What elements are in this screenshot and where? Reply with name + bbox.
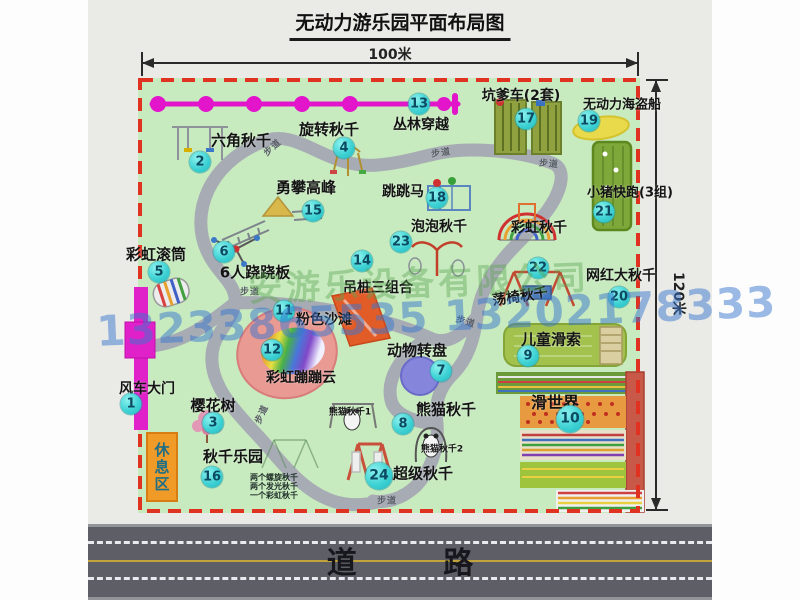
poi-marker-16: 16 <box>202 467 223 488</box>
dimension-width-label: 100米 <box>368 44 411 64</box>
poi-marker-24: 24 <box>366 463 393 490</box>
map-label-3: 熊猫秋千2 <box>421 442 463 455</box>
rest-area: 休息区 <box>146 432 178 502</box>
poi-label-16: 秋千乐园 <box>203 446 263 467</box>
road-label: 道 路 <box>289 538 511 582</box>
poi-marker-2: 2 <box>190 152 211 173</box>
page-title: 无动力游乐园平面布局图 <box>289 8 510 41</box>
poi-label-17: 坑爹车(2套) <box>482 85 561 105</box>
walkway-label-3: 步道 <box>538 156 559 171</box>
walkway-label-7: 步道 <box>377 494 397 507</box>
map-label-2: 熊猫秋千1 <box>329 405 371 418</box>
poi-marker-19: 19 <box>579 111 600 132</box>
poi-marker-17: 17 <box>516 109 537 130</box>
road: 道 路 <box>88 524 712 600</box>
poi-marker-10: 10 <box>557 406 584 433</box>
poi-marker-4: 4 <box>334 138 355 159</box>
poi-marker-1: 1 <box>121 394 142 415</box>
poi-label-23: 泡泡秋千 <box>411 216 467 236</box>
rest-area-label: 休息区 <box>152 442 173 493</box>
poi-sublabel-16-3: 一个彩虹秋千 <box>250 490 298 501</box>
poi-label-12: 彩虹蹦蹦云 <box>266 367 336 387</box>
poi-marker-6: 6 <box>214 242 235 263</box>
poi-label-8: 熊猫秋千 <box>416 399 476 420</box>
poi-marker-5: 5 <box>149 262 170 283</box>
walkway-label-2: 步道 <box>430 144 452 160</box>
poi-marker-18: 18 <box>427 188 448 209</box>
poi-label-15: 勇攀高峰 <box>276 177 336 198</box>
poi-marker-13: 13 <box>409 94 430 115</box>
poi-label-18: 跳跳马 <box>382 181 424 201</box>
poi-marker-9: 9 <box>518 346 539 367</box>
poi-marker-23: 23 <box>391 232 412 253</box>
poi-marker-3: 3 <box>203 413 224 434</box>
poi-label-21: 小猪快跑(3组) <box>587 182 673 201</box>
poi-label-2: 六角秋千 <box>211 130 271 151</box>
poi-label-13: 丛林穿越 <box>393 114 449 134</box>
map-label-1: 彩虹秋千 <box>511 217 567 237</box>
plan-image: 无动力游乐园平面布局图 100米 <box>0 0 800 600</box>
poi-label-19: 无动力海盗船 <box>583 94 661 113</box>
poi-marker-21: 21 <box>594 202 615 223</box>
poi-label-4: 旋转秋千 <box>299 119 359 140</box>
poi-marker-8: 8 <box>393 414 414 435</box>
poi-label-24: 超级秋千 <box>393 463 453 484</box>
poi-marker-7: 7 <box>431 361 452 382</box>
poi-marker-15: 15 <box>303 201 324 222</box>
